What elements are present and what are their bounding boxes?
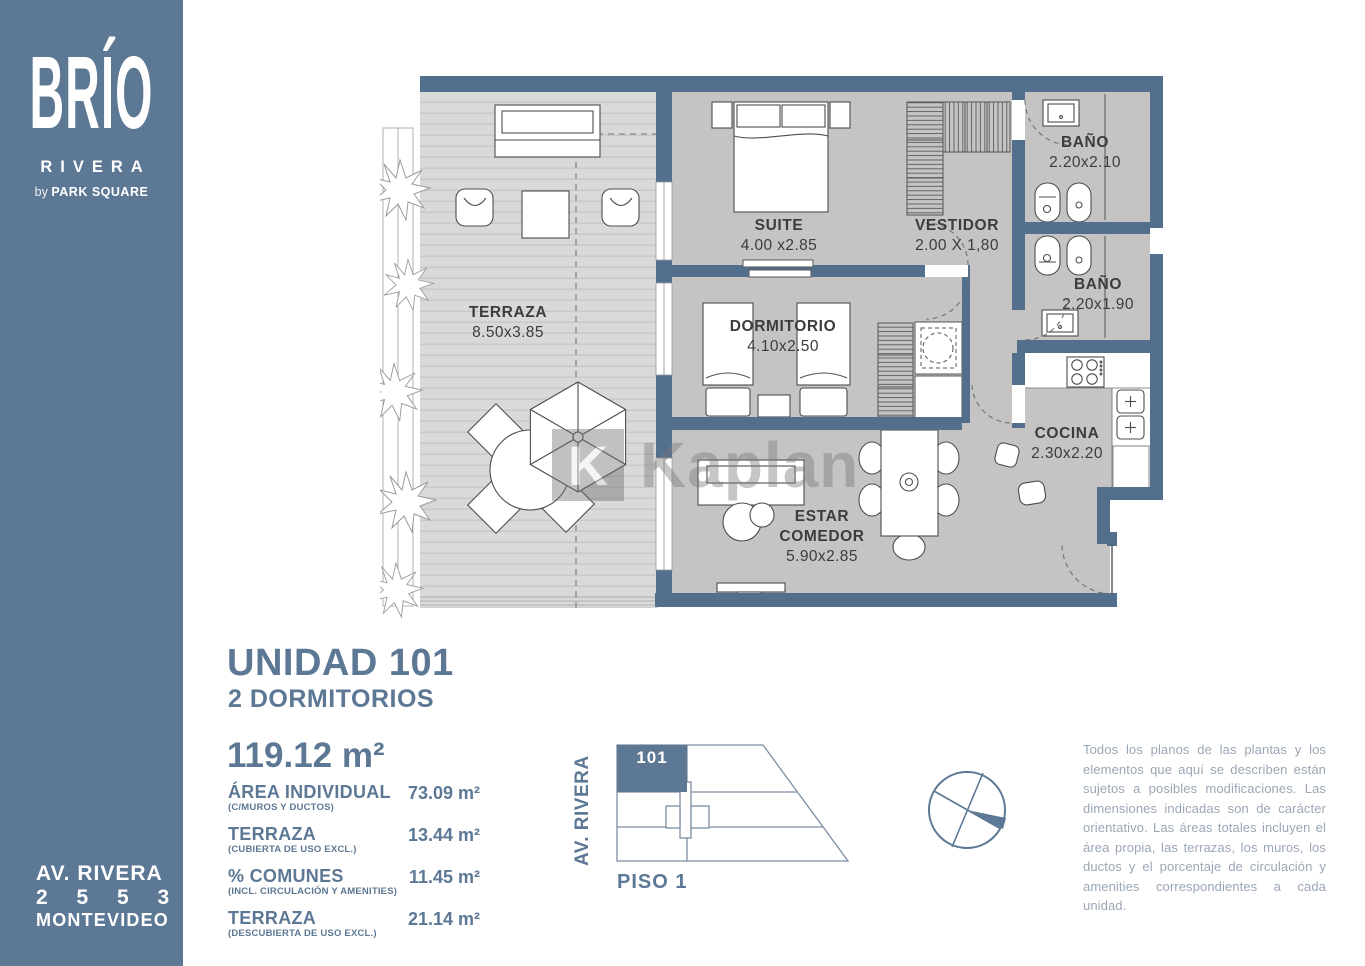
area-row-terraza-cubierta: TERRAZA (CUBIERTA DE USO EXCL.) 13.44 m² bbox=[228, 825, 480, 856]
watermark: K Kaplan bbox=[552, 428, 859, 502]
brand-by-text: by bbox=[35, 185, 48, 199]
project-address: AV. RIVERA 2 5 5 3 MONTEVIDEO bbox=[36, 862, 170, 931]
site-map-unit-number: 101 bbox=[617, 748, 687, 768]
address-street: AV. RIVERA bbox=[36, 862, 170, 886]
unit-total-area: 119.12 m² bbox=[227, 736, 385, 776]
area-breakdown: ÁREA INDIVIDUAL (C/MUROS Y DUCTOS) 73.09… bbox=[228, 783, 480, 951]
laundry-closet bbox=[878, 322, 962, 418]
disclaimer-text: Todos los planos de las plantas y los el… bbox=[1083, 740, 1326, 916]
watermark-text: Kaplan bbox=[640, 428, 859, 502]
brand-logo-text: BRÍO bbox=[0, 40, 183, 152]
page: BRÍO RIVERA by PARK SQUARE AV. RIVERA 2 … bbox=[0, 0, 1365, 966]
exterior-area bbox=[1110, 500, 1170, 610]
kitchen-island bbox=[1022, 388, 1112, 488]
street-label: AV. RIVERA bbox=[572, 748, 596, 866]
watermark-logo: K bbox=[552, 429, 624, 501]
area-row-individual: ÁREA INDIVIDUAL (C/MUROS Y DUCTOS) 73.09… bbox=[228, 783, 480, 814]
unit-subtitle: 2 DORMITORIOS bbox=[228, 685, 434, 714]
brand-logo-subtitle: RIVERA bbox=[0, 158, 183, 177]
address-number: 2 5 5 3 bbox=[36, 886, 170, 910]
compass-icon bbox=[922, 762, 1017, 857]
brand-logo: BRÍO RIVERA by PARK SQUARE bbox=[0, 40, 183, 92]
terrace-deck bbox=[420, 92, 658, 608]
brand-developer-name: PARK SQUARE bbox=[51, 185, 148, 199]
area-row-comunes: % COMUNES (INCL. CIRCULACIÓN Y AMENITIES… bbox=[228, 867, 480, 898]
floor-plan bbox=[380, 70, 1170, 620]
area-row-terraza-descubierta: TERRAZA (DESCUBIERTA DE USO EXCL.) 21.14… bbox=[228, 909, 480, 940]
sidebar: BRÍO RIVERA by PARK SQUARE AV. RIVERA 2 … bbox=[0, 0, 183, 966]
brand-logo-byline: by PARK SQUARE bbox=[0, 185, 183, 199]
unit-title: UNIDAD 101 bbox=[227, 642, 454, 685]
address-city: MONTEVIDEO bbox=[36, 910, 170, 931]
floor-label: PISO 1 bbox=[617, 871, 687, 894]
stove bbox=[1067, 357, 1104, 387]
